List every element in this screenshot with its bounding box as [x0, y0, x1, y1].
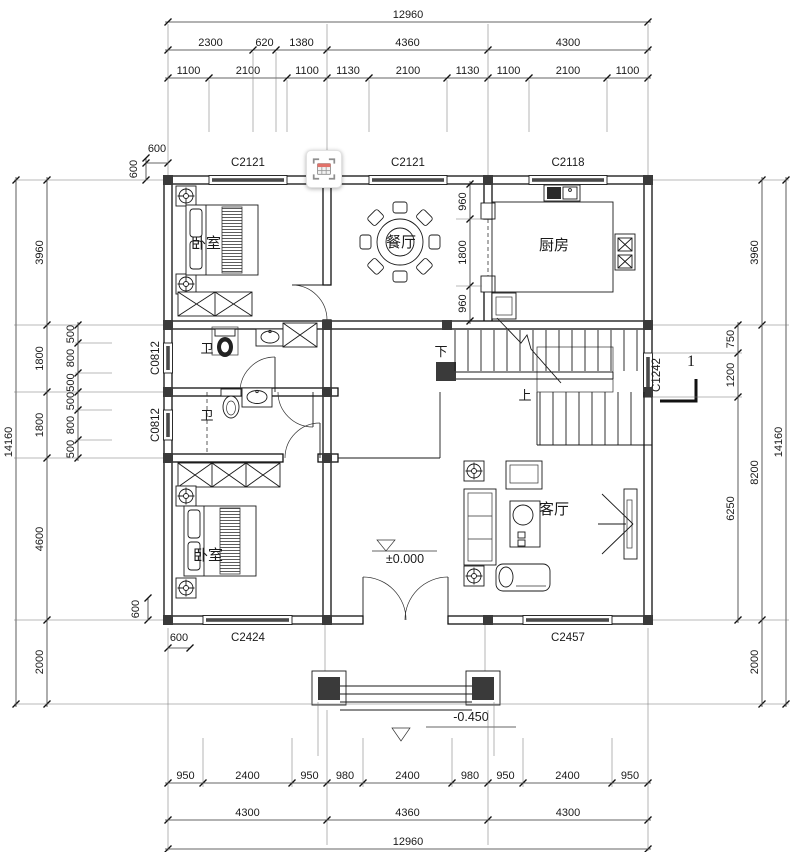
table-glyph-icon [311, 156, 337, 182]
room-label-bedroom-top: 卧室 [191, 235, 221, 252]
column [483, 175, 493, 185]
porch-column [318, 677, 340, 700]
dim-text: 960 [457, 192, 469, 210]
chaise [496, 564, 550, 591]
fridge [492, 293, 516, 319]
shaft-box [283, 323, 317, 347]
dim-text: 950 [496, 770, 514, 782]
level-marker-porch: -0.450 [392, 710, 516, 741]
dim-text: 1130 [336, 65, 360, 77]
window-top-right [529, 176, 607, 185]
side-table-lamp-icon [464, 461, 484, 481]
window-bottom-left [203, 616, 292, 625]
dim-text: 500 [65, 440, 77, 458]
dim-text: 2400 [395, 770, 419, 782]
dim-text: 1100 [616, 65, 640, 77]
column [322, 387, 332, 397]
dim-text: 950 [621, 770, 639, 782]
room-label-bath-top: 卫 [200, 341, 213, 356]
dim-text: 4360 [395, 37, 419, 49]
tv-cabinet [598, 489, 637, 559]
window-code: C1242 [651, 358, 663, 392]
column [643, 615, 653, 625]
dim-text: 14160 [773, 427, 785, 458]
column [643, 175, 653, 185]
dim-text: 750 [725, 330, 737, 348]
bedroom-bottom-furniture [176, 463, 280, 598]
window-code: C0812 [150, 341, 162, 375]
side-table-lamp-icon [464, 566, 484, 586]
dim-text: 960 [457, 294, 469, 312]
dining-chair [367, 258, 385, 276]
door-kitchen-sliding [481, 203, 495, 292]
dim-text: 14160 [3, 427, 15, 458]
section-number: 1 [687, 353, 695, 370]
dim-text: 1130 [456, 65, 480, 77]
dim-text: 600 [170, 632, 188, 644]
floor-plan-page: ±0.000 -0.450 1 卧室 餐厅 厨房 客厅 卫 卫 卧室 下 上 C… [0, 0, 800, 852]
level-main-text: ±0.000 [386, 552, 424, 566]
column [483, 615, 493, 625]
dim-text: 2100 [396, 65, 420, 77]
room-label-bedroom-bottom: 卧室 [193, 547, 223, 564]
window-left-upper [164, 343, 173, 373]
dim-text: 1100 [177, 65, 201, 77]
window-top-left [209, 176, 287, 185]
dim-text: 2000 [34, 650, 46, 674]
dim-text: 980 [336, 770, 354, 782]
stairs-up-label: 上 [518, 388, 531, 403]
dim-text: 600 [128, 160, 140, 178]
dim-text: 4360 [395, 807, 419, 819]
column [643, 320, 653, 330]
room-label-dining: 餐厅 [386, 234, 416, 251]
room-label-kitchen: 厨房 [539, 237, 569, 254]
sofa [464, 489, 496, 565]
dining-chair [367, 209, 385, 227]
window-top-mid [369, 176, 447, 185]
armchair [506, 461, 542, 489]
column [163, 615, 173, 625]
dim-text: 2400 [555, 770, 579, 782]
dining-chair [393, 202, 407, 213]
column [163, 175, 173, 185]
bed [184, 506, 256, 576]
coffee-table [510, 501, 540, 547]
porch [312, 624, 500, 710]
room-label-bath-bottom: 卫 [200, 408, 213, 423]
dim-text: 500 [65, 325, 77, 343]
dim-text: 4600 [34, 527, 46, 551]
level-porch-text: -0.450 [453, 710, 488, 724]
dim-text: 2300 [198, 37, 222, 49]
column [322, 453, 332, 463]
dim-text: 4300 [556, 807, 580, 819]
dim-text: 2000 [749, 650, 761, 674]
window-bottom-right [523, 616, 612, 625]
door-entrance-double [363, 577, 448, 620]
dim-text: 2100 [556, 65, 580, 77]
dim-text: 1800 [457, 240, 469, 264]
stair-newel [436, 362, 456, 381]
porch-column [472, 677, 494, 700]
stove [615, 234, 635, 270]
dim-text: 1380 [289, 37, 313, 49]
dim-text: 950 [300, 770, 318, 782]
dim-text: 1800 [34, 413, 46, 437]
dim-text: 800 [65, 349, 77, 367]
nightstand-lamp-icon [176, 486, 196, 506]
dining-chair [393, 271, 407, 282]
column [163, 387, 173, 397]
dim-text: 600 [148, 143, 166, 155]
wardrobe [178, 463, 280, 487]
nightstand-lamp-icon [176, 578, 196, 598]
dim-text: 4300 [235, 807, 259, 819]
dim-text: 12960 [393, 836, 424, 848]
living-room-furniture [464, 461, 637, 591]
door-bedroom-top [292, 285, 327, 320]
column [163, 320, 173, 330]
dim-text: 2400 [235, 770, 259, 782]
dining-chair [416, 258, 434, 276]
dim-text: 6250 [725, 496, 737, 520]
nightstand-lamp-icon [176, 274, 196, 294]
door-bath-bottom [278, 392, 313, 427]
window-code: C2118 [551, 157, 584, 169]
window-code: C2121 [391, 157, 425, 169]
dim-text: 980 [461, 770, 479, 782]
dim-text: 1800 [34, 346, 46, 370]
dim-text: 1100 [497, 65, 521, 77]
dim-text: 3960 [34, 240, 46, 264]
window-code: C2424 [231, 632, 265, 644]
stairs-down-label: 下 [434, 344, 447, 359]
window-code: C2457 [551, 632, 585, 644]
column [322, 320, 332, 330]
window-code: C2121 [231, 157, 265, 169]
dim-text: 800 [65, 416, 77, 434]
dining-chair [416, 209, 434, 227]
dim-text: 8200 [749, 460, 761, 484]
level-marker-main: ±0.000 [372, 540, 437, 566]
dim-text: 500 [65, 373, 77, 391]
dim-text: 4300 [556, 37, 580, 49]
window-left-lower [164, 410, 173, 440]
door-bedroom-bottom [285, 423, 320, 458]
wardrobe [178, 292, 252, 316]
dim-text: 1200 [725, 363, 737, 387]
dim-text: 2100 [236, 65, 260, 77]
dim-text: 600 [130, 600, 142, 618]
column [163, 453, 173, 463]
column [643, 387, 653, 397]
nightstand-lamp-icon [176, 186, 196, 206]
floor-plan-drawing: ±0.000 -0.450 1 卧室 餐厅 厨房 客厅 卫 卫 卧室 下 上 C… [0, 0, 800, 852]
dim-text: 3960 [749, 240, 761, 264]
section-marker: 1 [660, 353, 696, 401]
kitchen-sink [544, 185, 580, 201]
table-tool-overlay-icon[interactable] [306, 150, 342, 188]
bathroom-bottom [207, 388, 272, 454]
dim-text: 500 [65, 392, 77, 410]
dim-text: 620 [255, 37, 273, 49]
room-label-living: 客厅 [539, 501, 569, 518]
dim-text: 1100 [295, 65, 319, 77]
column [442, 320, 452, 330]
door-bath-top [240, 357, 275, 392]
dim-text: 950 [176, 770, 194, 782]
window-code: C0812 [150, 408, 162, 442]
dim-text: 12960 [393, 9, 424, 21]
dining-chair [360, 235, 371, 249]
dining-chair [429, 235, 440, 249]
column [322, 615, 332, 625]
